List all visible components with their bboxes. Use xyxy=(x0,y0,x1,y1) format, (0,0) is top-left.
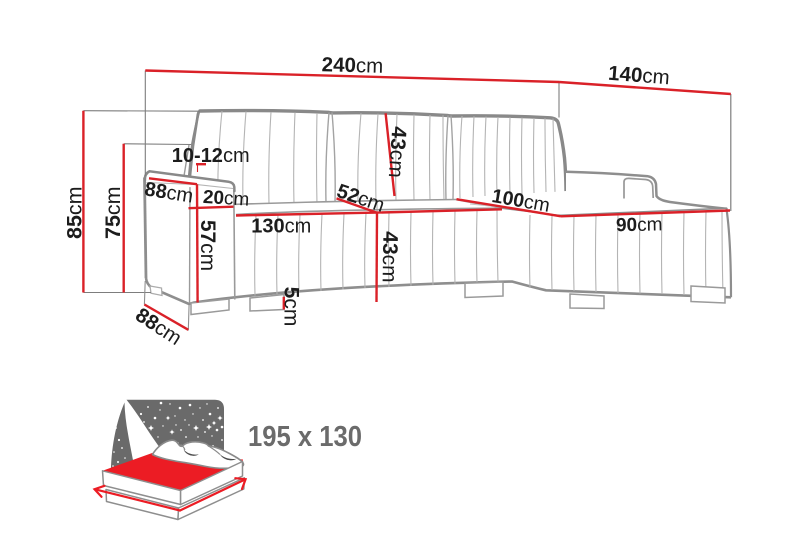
svg-text:43cm: 43cm xyxy=(378,231,402,283)
svg-text:240cm: 240cm xyxy=(321,53,383,78)
svg-text:195 x 130: 195 x 130 xyxy=(248,421,362,453)
svg-text:5cm: 5cm xyxy=(280,287,303,327)
svg-text:90cm: 90cm xyxy=(616,214,663,236)
svg-text:43cm: 43cm xyxy=(384,126,411,179)
svg-text:88cm: 88cm xyxy=(131,303,186,350)
svg-text:130cm: 130cm xyxy=(251,216,311,238)
svg-text:75cm: 75cm xyxy=(101,186,125,239)
svg-text:57cm: 57cm xyxy=(196,220,219,271)
svg-text:85cm: 85cm xyxy=(62,186,86,239)
svg-text:20cm: 20cm xyxy=(202,187,250,211)
svg-text:10-12cm: 10-12cm xyxy=(172,145,250,167)
svg-text:140cm: 140cm xyxy=(607,62,670,90)
